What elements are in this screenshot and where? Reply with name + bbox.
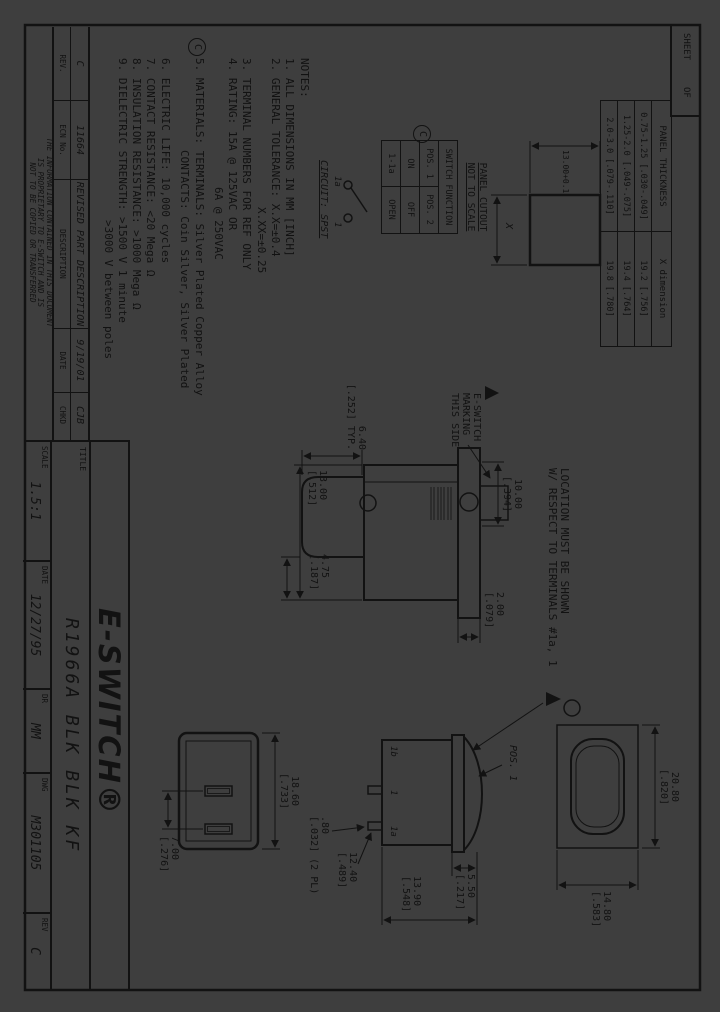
- revision-table: C 11664 REVISED PART DESCRIPTION 9/19/01…: [52, 27, 90, 440]
- rocker-view: [557, 725, 660, 890]
- date-value: 9/19/01: [71, 329, 88, 393]
- location-note: LOCATION MUST BE SHOWN W/ RESPECT TO TER…: [546, 468, 570, 667]
- date-label: DATE: [54, 329, 70, 393]
- dim-terminal-length: 12.40 [.489]: [336, 852, 358, 888]
- rev-value: C: [71, 27, 88, 101]
- dim-body-width: 13.00 [.512]: [306, 470, 328, 506]
- info-row: SCALE 1.5:1 DATE 12/27/95 DR MM DWG M301…: [23, 442, 50, 990]
- note-line: 7. CONTACT RESISTANCE: <20 Mega Ω: [144, 58, 156, 277]
- chkd-value: CJB: [71, 393, 88, 437]
- chkd-label: CHKD: [54, 393, 70, 437]
- circuit-terminal-1a: 1a: [332, 176, 342, 187]
- note-line: CONTACTS: Coin Silver, Silver Plated: [178, 150, 190, 388]
- marking-note: E-SWITCH MARKING THIS SIDE: [449, 393, 482, 447]
- panel-cutout-view: [491, 141, 600, 265]
- table-cell: OFF: [401, 187, 419, 232]
- revision-balloon: C: [413, 125, 431, 143]
- circuit-symbol: [344, 181, 367, 222]
- table-cell: 2.0-3.0 [.079-.110]: [601, 101, 617, 232]
- revision-labels-row: REV. ECN No. DESCRIPTION DATE CHKD: [52, 27, 70, 440]
- scale-cell: SCALE 1.5:1: [23, 442, 50, 562]
- terminal-label-1b: 1b: [388, 746, 398, 757]
- circuit-terminal-1: 1: [332, 222, 342, 227]
- table-row: POS. 1 POS. 2: [419, 141, 438, 233]
- note-line: 1. ALL DIMENSIONS IN MM [INCH]: [283, 58, 295, 257]
- location-markers: [473, 692, 580, 750]
- date-value: 12/27/95: [27, 562, 42, 688]
- title-label: TITLE: [78, 447, 87, 471]
- revision-values-row: C 11664 REVISED PART DESCRIPTION 9/19/01…: [70, 27, 88, 440]
- dim-total-height: 13.90 [.548]: [400, 876, 422, 912]
- ecn-value: 11664: [71, 101, 88, 180]
- date-cell: DATE 12/27/95: [23, 562, 50, 690]
- drawing-canvas: SHEET OF PANEL THICKNESS X dimension 0.7…: [0, 0, 720, 1012]
- description-value: REVISED PART DESCRIPTION: [71, 180, 88, 329]
- table-cell: POS. 1: [420, 141, 438, 187]
- function-table-title: SWITCH FUNCTION: [438, 141, 457, 233]
- table-cell: 19.2 [.756]: [635, 232, 651, 345]
- note-line: 5. MATERIALS: TERMINALS: Silver Plated C…: [193, 58, 205, 396]
- terminal-label-1a: 1a: [388, 826, 398, 837]
- of-label: OF: [681, 87, 691, 98]
- note-line: >3000 V between poles: [102, 220, 114, 359]
- scale-value: 1.5:1: [27, 442, 42, 560]
- dim-terminal-thickness: .80 [.032] (2 PL): [308, 816, 330, 894]
- rev-label: REV.: [54, 27, 70, 101]
- dr-cell: DR MM: [23, 690, 50, 774]
- note-line: 3. TERMINAL NUMBERS FOR REF ONLY: [240, 58, 252, 270]
- description-label: DESCRIPTION: [54, 180, 70, 329]
- table-header-row: PANEL THICKNESS X dimension: [652, 101, 671, 346]
- cutout-width-dim: 13.00+0.1: [561, 150, 570, 193]
- dim-housing-length: 18.60 [.733]: [278, 755, 300, 827]
- table-row: 0.75-1.25 [.030-.049] 19.2 [.756]: [635, 101, 652, 346]
- sheet-box: SHEET OF: [670, 25, 700, 117]
- panel-cutout-label: PANEL CUTOUT NOT TO SCALE: [464, 158, 488, 236]
- table-cell: OPEN: [382, 187, 400, 232]
- notes-heading: NOTES:: [298, 58, 310, 98]
- title-block: E-SWITCH® TITLE R1966A BLK BLK KF SCALE …: [25, 440, 130, 990]
- table-cell: 1.25-2.0 [.049-.075]: [618, 101, 634, 232]
- x-dimension-header: X dimension: [652, 232, 671, 345]
- dim-rocker-width: 14.80 [.583]: [590, 891, 612, 927]
- drawing-page: SHEET OF PANEL THICKNESS X dimension 0.7…: [0, 0, 720, 1012]
- table-row: 2.0-3.0 [.079-.110] 19.8 [.780]: [601, 101, 618, 346]
- dim-terminal-spacing: 7.00 [.276]: [158, 836, 180, 872]
- note-line: 4. RATING: 15A @ 125VAC OR: [226, 58, 238, 230]
- rev-value: C: [27, 914, 42, 988]
- table-row: 1-1a OPEN: [382, 141, 400, 233]
- table-row: ON OFF: [400, 141, 419, 233]
- title-row: TITLE R1966A BLK BLK KF: [50, 442, 89, 990]
- table-cell: 1-1a: [382, 141, 400, 187]
- sheet-label: SHEET: [681, 33, 691, 60]
- panel-thickness-header: PANEL THICKNESS: [652, 101, 671, 232]
- circuit-label: CIRCUIT: SPST: [318, 160, 329, 238]
- table-row: 1.25-2.0 [.049-.075] 19.4 [.764]: [618, 101, 635, 346]
- part-title: R1966A BLK BLK KF: [61, 618, 82, 853]
- proprietary-note: THE INFORMATION CONTAINED IN THIS DOCUME…: [27, 120, 53, 345]
- dim-rocker-height: 6.40 [.252] TYP.: [345, 360, 367, 450]
- revision-balloon: C: [188, 38, 206, 56]
- note-line: 2. GENERAL TOLERANCE: X.X=±0.4: [269, 58, 281, 257]
- rev-cell: REV C: [23, 914, 50, 988]
- eswitch-logo: E-SWITCH®: [92, 608, 126, 816]
- panel-thickness-table: PANEL THICKNESS X dimension 0.75-1.25 [.…: [600, 100, 672, 347]
- cutout-x-dim: X: [503, 223, 514, 229]
- table-cell: ON: [401, 141, 419, 187]
- pos1-label: POS. 1: [507, 745, 518, 781]
- marking-triangle: [485, 386, 499, 400]
- logo-row: E-SWITCH®: [89, 442, 128, 990]
- dwg-number: M301105: [27, 774, 42, 912]
- terminal-label-1: 1: [388, 790, 398, 795]
- table-cell: POS. 2: [420, 187, 438, 232]
- dwg-cell: DWG M301105: [23, 774, 50, 914]
- table-cell: 0.75-1.25 [.030-.049]: [635, 101, 651, 232]
- note-line: 6. ELECTRIC LIFE: 10,000 cycles: [159, 58, 171, 263]
- dim-body-offset: 4.75 [.187]: [308, 554, 330, 590]
- table-cell: 19.8 [.780]: [601, 232, 617, 345]
- note-line: 6A @ 250VAC: [212, 187, 224, 260]
- note-line: X.XX=±0.25: [255, 207, 267, 273]
- switch-function-table: SWITCH FUNCTION POS. 1 POS. 2 ON OFF 1-1…: [381, 140, 458, 234]
- dim-flange-thickness: 2.00 [.079]: [483, 592, 505, 628]
- dr-value: MM: [27, 690, 42, 772]
- table-cell: 19.4 [.764]: [618, 232, 634, 345]
- dim-bezel-height: 5.50 [.217]: [454, 874, 476, 910]
- dim-rocker-length: 20.80 [.820]: [658, 750, 680, 824]
- ecn-label: ECN No.: [54, 101, 70, 180]
- back-view: [162, 733, 280, 849]
- dim-bushing-width: 10.00 [.394]: [501, 464, 523, 524]
- note-line: 8. INSULATION RESISTANCE: >1000 Mega Ω: [130, 58, 142, 310]
- note-line: 9. DIELECTRIC STRENGTH: >1500 V 1 minute: [116, 58, 128, 323]
